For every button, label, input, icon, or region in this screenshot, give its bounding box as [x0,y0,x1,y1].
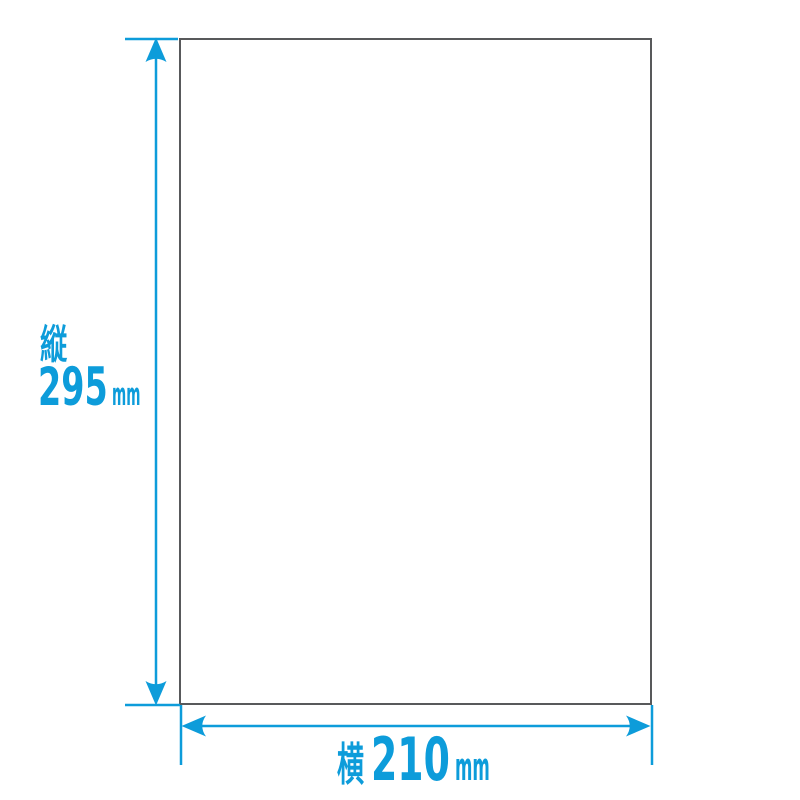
down-arrowhead-icon [146,681,167,706]
width-label: 横 210 mm [337,730,534,790]
paper-outline [180,39,651,704]
width-value: 210 [371,730,450,790]
up-arrowhead-icon [146,38,167,63]
height-value-label: 295 mm [38,361,176,414]
height-unit: mm [112,380,140,411]
dimension-diagram: 縦 295 mm 横 210 mm [0,0,800,800]
width-unit: mm [455,748,490,786]
width-axis-kanji: 横 [337,742,364,787]
height-value: 295 [38,361,108,414]
